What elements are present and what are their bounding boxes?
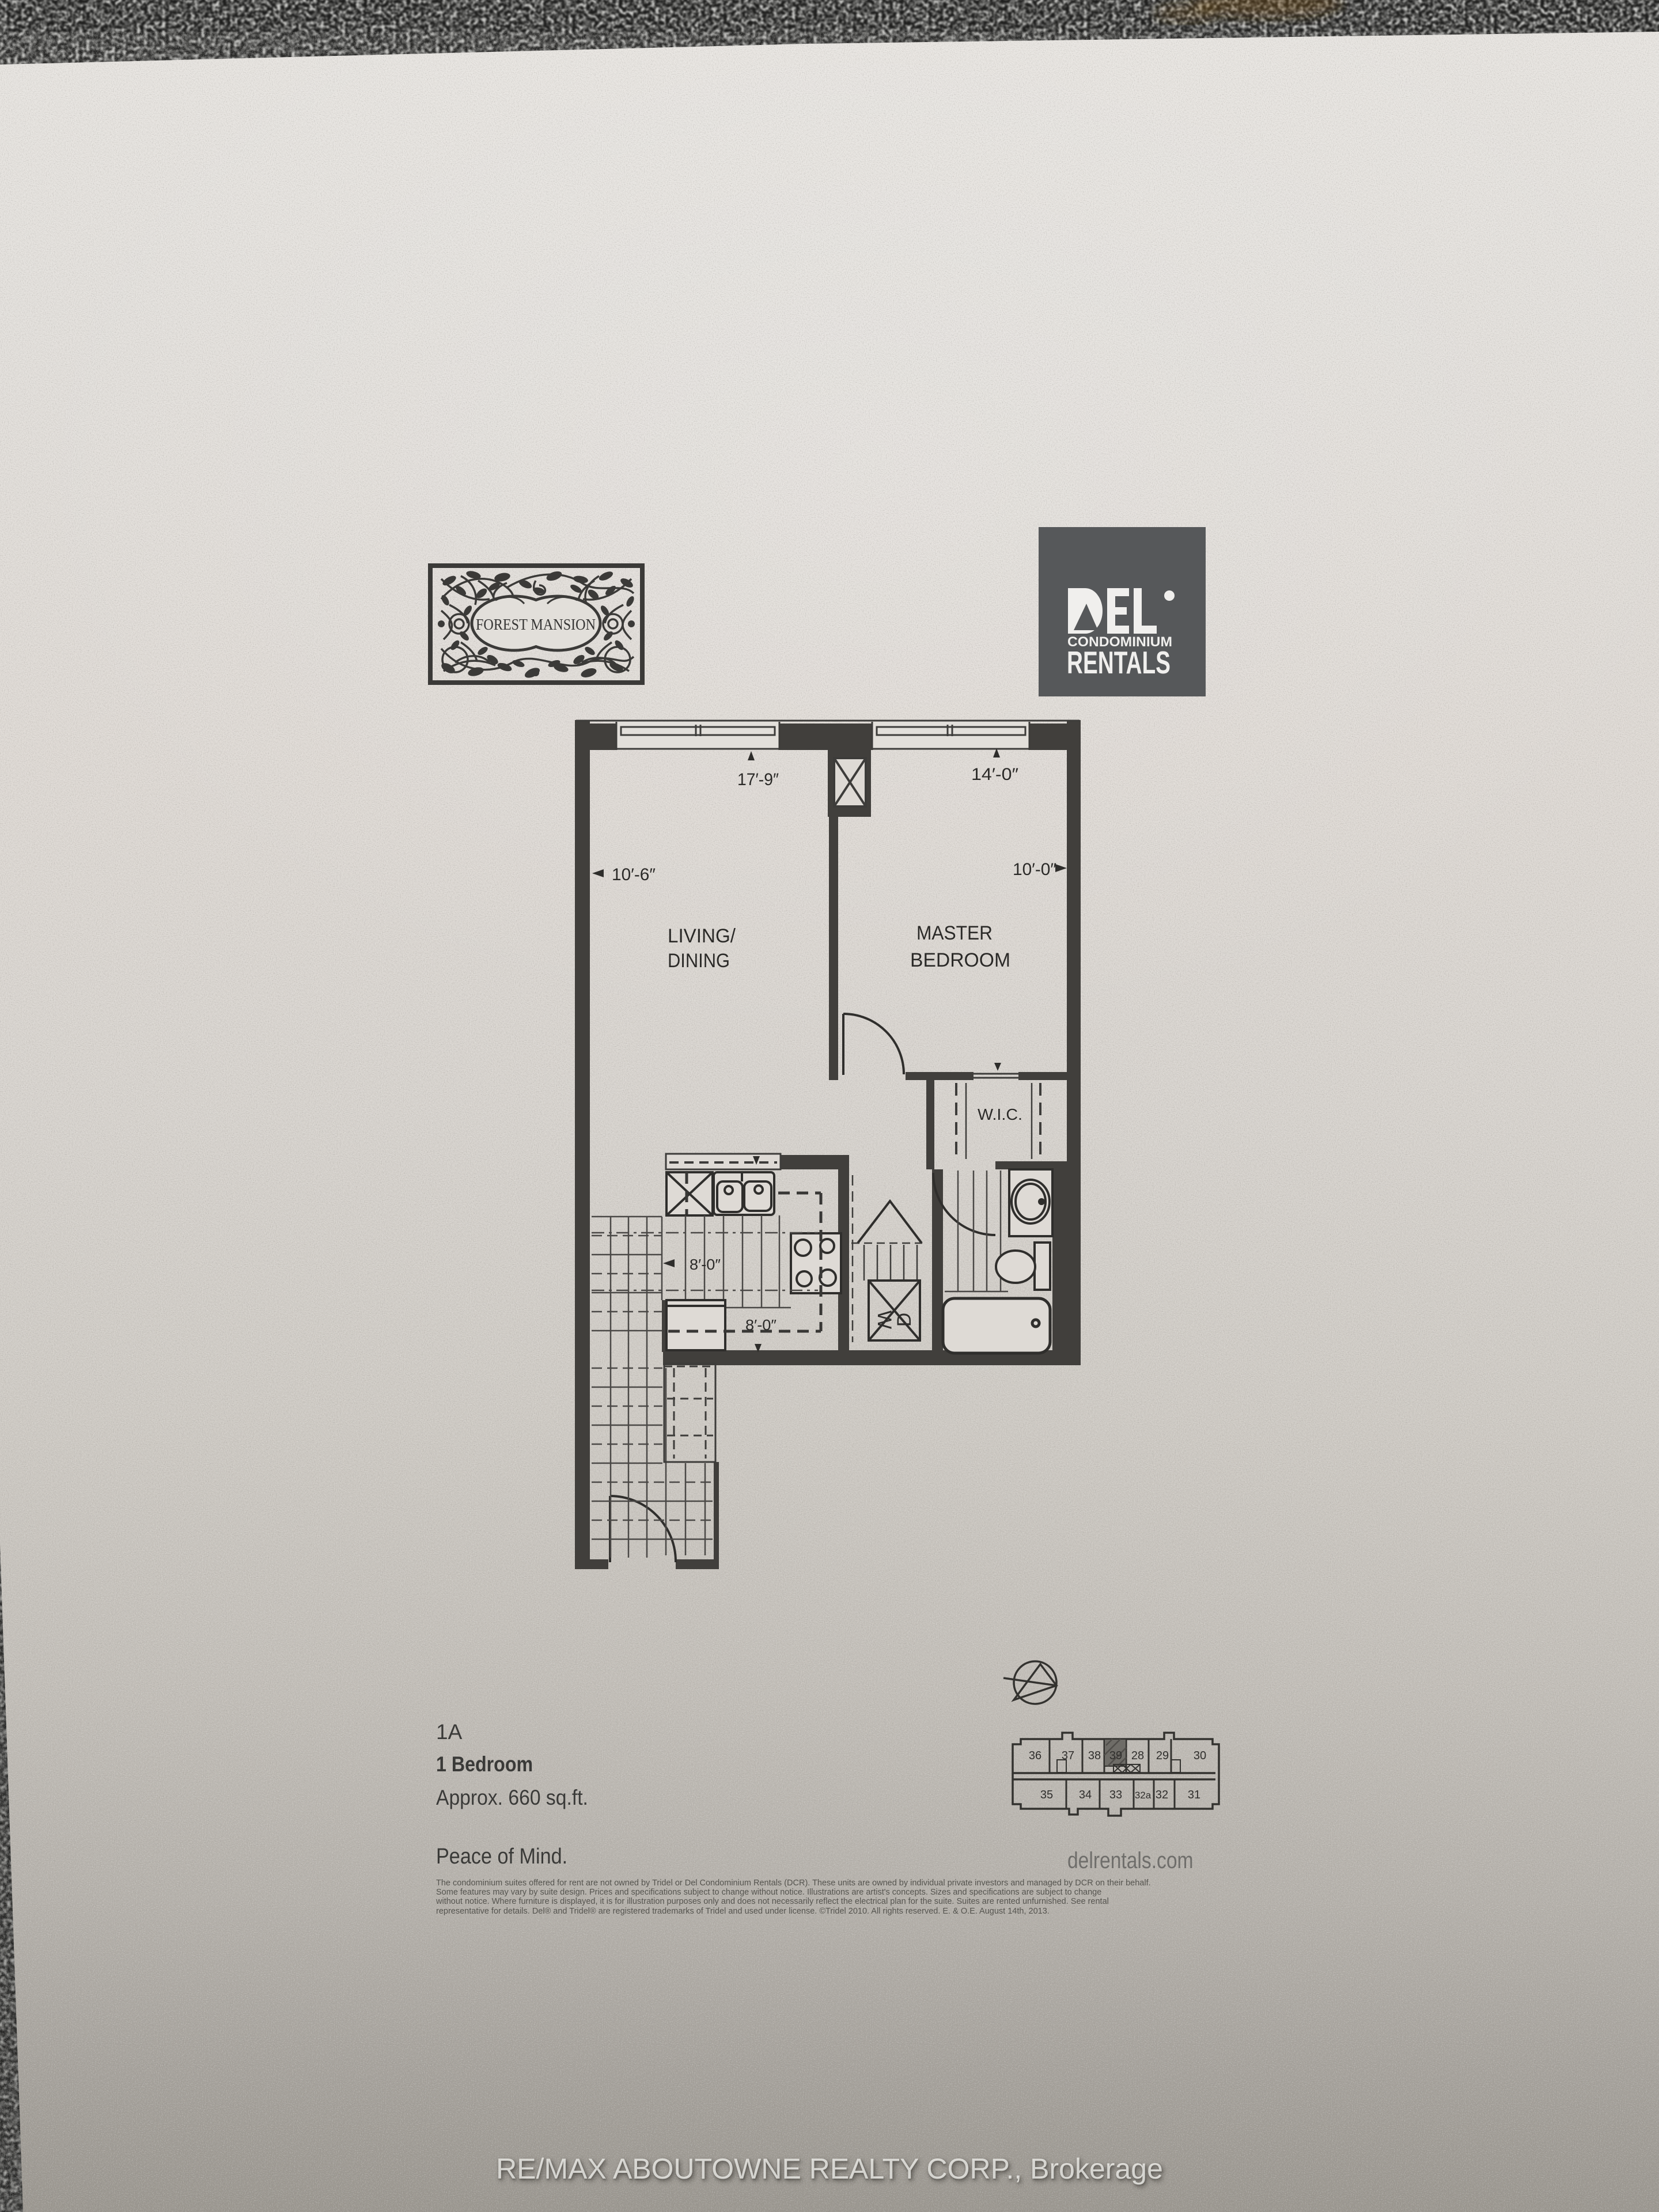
svg-text:DINING: DINING: [668, 950, 730, 972]
svg-text:8′-0″: 8′-0″: [690, 1256, 721, 1273]
svg-text:30: 30: [1194, 1749, 1206, 1762]
svg-text:33: 33: [1109, 1789, 1122, 1801]
svg-text:32a: 32a: [1135, 1790, 1152, 1801]
svg-text:10′-0″: 10′-0″: [1013, 860, 1056, 879]
svg-text:17′-9″: 17′-9″: [737, 770, 779, 789]
svg-text:10′-6″: 10′-6″: [612, 865, 656, 884]
svg-text:28: 28: [1131, 1749, 1144, 1762]
svg-text:W: W: [873, 1310, 895, 1329]
svg-text:RENTALS: RENTALS: [1067, 645, 1171, 680]
svg-text:38: 38: [1088, 1749, 1101, 1762]
svg-text:BEDROOM: BEDROOM: [910, 949, 1010, 971]
svg-text:W.I.C.: W.I.C.: [978, 1105, 1022, 1123]
svg-text:36: 36: [1029, 1749, 1041, 1762]
svg-text:8′-0″: 8′-0″: [745, 1316, 777, 1334]
svg-text:31: 31: [1188, 1789, 1200, 1801]
svg-text:37: 37: [1062, 1749, 1074, 1762]
svg-text:29: 29: [1156, 1749, 1169, 1762]
svg-text:14′-0″: 14′-0″: [971, 765, 1018, 784]
svg-text:D: D: [893, 1313, 915, 1327]
svg-text:35: 35: [1040, 1789, 1053, 1801]
svg-text:34: 34: [1079, 1789, 1092, 1801]
svg-text:FOREST MANSION: FOREST MANSION: [476, 616, 596, 633]
svg-text:39: 39: [1109, 1749, 1122, 1762]
svg-text:MASTER: MASTER: [916, 922, 993, 944]
svg-text:32: 32: [1156, 1789, 1168, 1801]
svg-text:LIVING/: LIVING/: [668, 925, 736, 947]
